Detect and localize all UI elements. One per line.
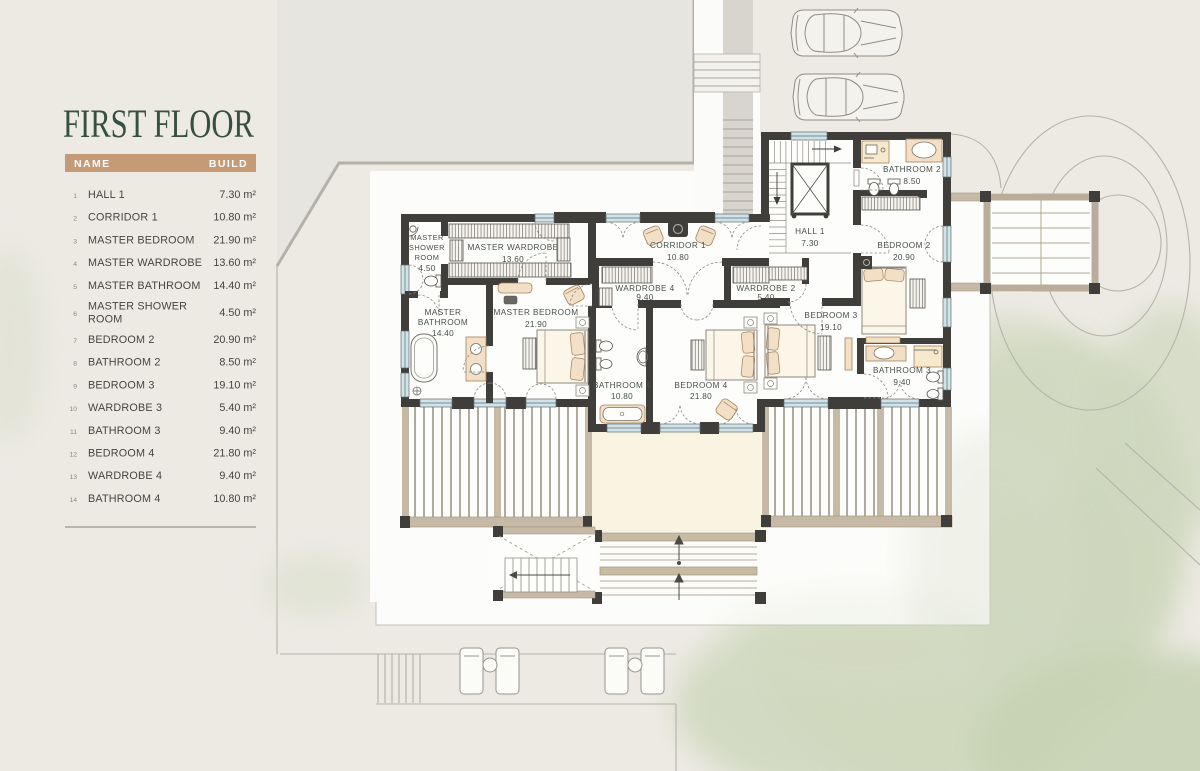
svg-text:BATHROOM 2: BATHROOM 2 <box>883 165 941 174</box>
svg-text:13.60 m²: 13.60 m² <box>213 257 256 269</box>
svg-text:BATHROOM 2: BATHROOM 2 <box>88 357 161 369</box>
svg-text:WARDROBE 3: WARDROBE 3 <box>88 402 162 414</box>
svg-text:CORRIDOR 1: CORRIDOR 1 <box>88 212 158 224</box>
svg-text:4.50 m²: 4.50 m² <box>219 307 256 319</box>
svg-text:BEDROOM 3: BEDROOM 3 <box>804 311 857 320</box>
svg-text:13: 13 <box>69 474 77 481</box>
svg-text:12: 12 <box>69 452 77 459</box>
svg-text:HALL 1: HALL 1 <box>88 189 125 201</box>
svg-text:20.90: 20.90 <box>893 253 915 262</box>
svg-text:MASTER: MASTER <box>410 233 444 242</box>
svg-text:7.30: 7.30 <box>801 239 818 248</box>
svg-text:MASTER BEDROOM: MASTER BEDROOM <box>494 308 579 317</box>
svg-text:14: 14 <box>69 497 77 504</box>
svg-text:2: 2 <box>73 216 77 223</box>
svg-text:7.30 m²: 7.30 m² <box>219 189 256 201</box>
svg-text:9.40 m²: 9.40 m² <box>219 425 256 437</box>
svg-text:BEDROOM 2: BEDROOM 2 <box>877 241 930 250</box>
svg-text:19.10 m²: 19.10 m² <box>213 379 256 391</box>
svg-text:SHOWER: SHOWER <box>409 243 445 252</box>
svg-text:9.40 m²: 9.40 m² <box>219 470 256 482</box>
svg-text:5.40 m²: 5.40 m² <box>219 402 256 414</box>
svg-text:10.80 m²: 10.80 m² <box>213 493 256 505</box>
svg-text:19.10: 19.10 <box>820 323 842 332</box>
svg-text:10.80: 10.80 <box>611 392 633 401</box>
svg-text:1: 1 <box>73 193 77 200</box>
svg-text:3: 3 <box>73 238 77 245</box>
svg-text:MASTER WARDROBE: MASTER WARDROBE <box>88 257 202 269</box>
svg-text:7: 7 <box>73 338 77 345</box>
svg-text:14.40 m²: 14.40 m² <box>213 280 256 292</box>
svg-text:6: 6 <box>73 311 77 318</box>
svg-text:FIRST FLOOR: FIRST FLOOR <box>63 101 254 146</box>
svg-text:21.80 m²: 21.80 m² <box>213 448 256 460</box>
svg-text:9.40: 9.40 <box>636 293 653 302</box>
svg-text:10.80: 10.80 <box>667 253 689 262</box>
svg-text:8: 8 <box>73 361 77 368</box>
svg-text:MASTER BATHROOM: MASTER BATHROOM <box>88 280 201 292</box>
svg-text:8.50 m²: 8.50 m² <box>219 357 256 369</box>
svg-text:WARDROBE 4: WARDROBE 4 <box>615 284 674 293</box>
svg-text:MASTER BEDROOM: MASTER BEDROOM <box>88 234 195 246</box>
svg-text:8.50: 8.50 <box>903 177 920 186</box>
svg-text:10: 10 <box>69 406 77 413</box>
svg-text:21.90: 21.90 <box>525 320 547 329</box>
svg-text:BATHROOM 4: BATHROOM 4 <box>593 381 651 390</box>
svg-text:BEDROOM 2: BEDROOM 2 <box>88 334 155 346</box>
svg-text:HALL 1: HALL 1 <box>795 227 825 236</box>
svg-text:11: 11 <box>70 429 77 436</box>
svg-text:MASTER: MASTER <box>425 308 462 317</box>
svg-text:9.40: 9.40 <box>893 378 910 387</box>
svg-text:ROOM: ROOM <box>88 314 122 326</box>
svg-text:13.60: 13.60 <box>502 255 524 264</box>
svg-text:BEDROOM 4: BEDROOM 4 <box>674 381 727 390</box>
svg-text:BATHROOM 3: BATHROOM 3 <box>873 366 931 375</box>
svg-text:BUILD: BUILD <box>209 158 248 170</box>
svg-text:BEDROOM 4: BEDROOM 4 <box>88 448 155 460</box>
svg-text:CORRIDOR 1: CORRIDOR 1 <box>650 241 706 250</box>
svg-text:NAME: NAME <box>74 158 111 170</box>
svg-text:BATHROOM: BATHROOM <box>418 318 468 327</box>
svg-text:14.40: 14.40 <box>432 329 454 338</box>
svg-text:ROOM: ROOM <box>415 253 440 262</box>
svg-text:BATHROOM 4: BATHROOM 4 <box>88 493 161 505</box>
svg-text:5: 5 <box>73 284 77 291</box>
svg-text:21.90 m²: 21.90 m² <box>213 234 256 246</box>
svg-text:4: 4 <box>73 261 77 268</box>
svg-text:21.80: 21.80 <box>690 392 712 401</box>
svg-text:20.90 m²: 20.90 m² <box>213 334 256 346</box>
svg-text:5.40: 5.40 <box>757 293 774 302</box>
svg-text:WARDROBE 4: WARDROBE 4 <box>88 470 162 482</box>
svg-text:MASTER SHOWER: MASTER SHOWER <box>88 301 187 313</box>
svg-text:MASTER WARDROBE: MASTER WARDROBE <box>467 243 558 252</box>
svg-text:4.50: 4.50 <box>418 264 435 273</box>
svg-text:BATHROOM 3: BATHROOM 3 <box>88 425 161 437</box>
svg-text:9: 9 <box>73 383 77 390</box>
svg-text:10.80 m²: 10.80 m² <box>213 212 256 224</box>
svg-text:BEDROOM 3: BEDROOM 3 <box>88 379 155 391</box>
svg-text:WARDROBE 2: WARDROBE 2 <box>736 284 795 293</box>
